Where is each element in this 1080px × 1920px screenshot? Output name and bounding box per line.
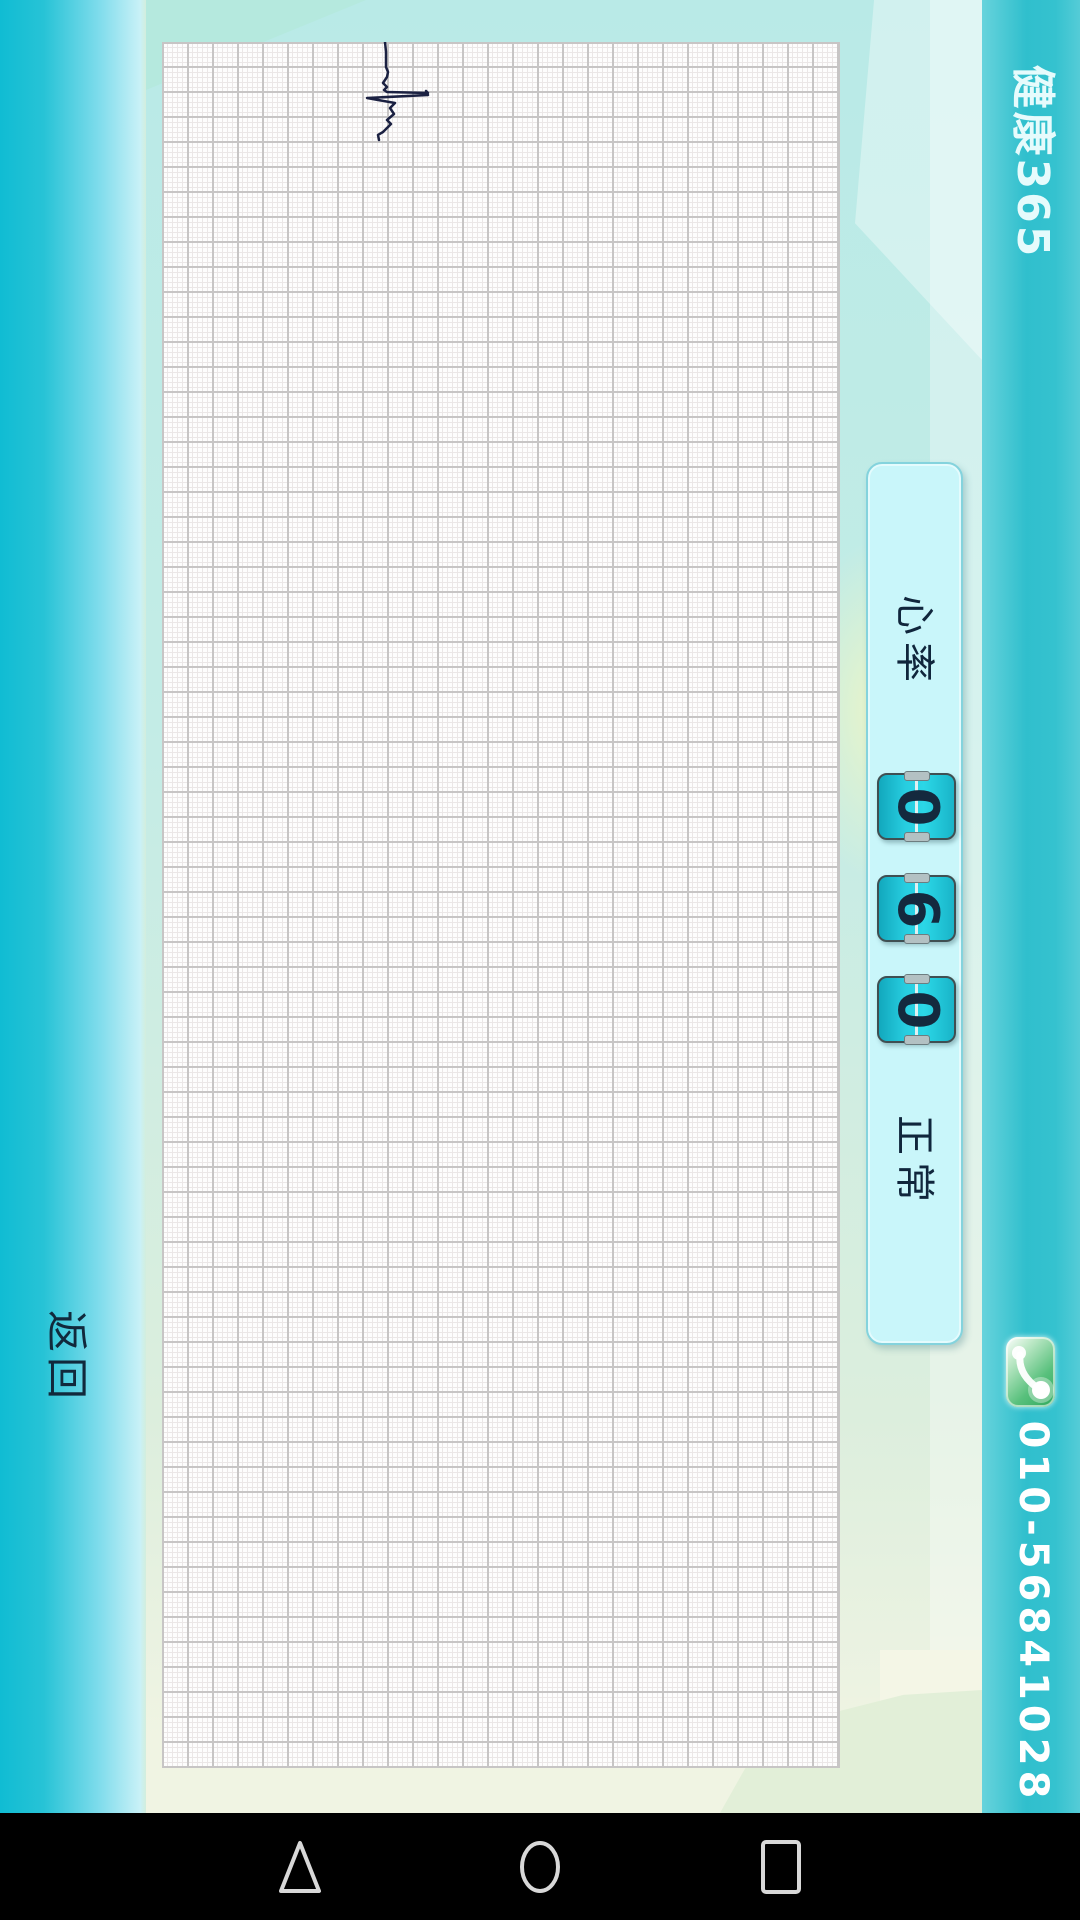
android-navbar xyxy=(0,1813,1080,1920)
flip-counter-hinge xyxy=(904,934,930,944)
flip-digit: 0 xyxy=(889,787,945,826)
phone-handset-icon xyxy=(1006,1337,1055,1407)
heart-rate-label: 心率 xyxy=(894,595,934,689)
flip-counter-hinge xyxy=(904,771,930,781)
flip-counter-hinge xyxy=(904,974,930,984)
app-title: 健康365 xyxy=(1010,65,1054,260)
screen: 返回 健康365 010-56841028 心率 0 6 0 正常 xyxy=(0,0,1080,1920)
nav-back-button[interactable] xyxy=(264,1831,336,1903)
flip-digit-tile: 0 xyxy=(877,773,956,840)
ecg-grid-paper xyxy=(162,42,840,1768)
phone-icon[interactable] xyxy=(1006,1337,1055,1407)
nav-home-button[interactable] xyxy=(504,1831,576,1903)
heart-rate-panel: 心率 0 6 0 正常 xyxy=(866,462,963,1345)
flip-counter-hinge xyxy=(904,1035,930,1045)
flip-digit: 6 xyxy=(889,889,945,928)
left-sidebar: 返回 xyxy=(0,0,146,1813)
circle-home-icon xyxy=(518,1839,562,1895)
flip-counter-hinge xyxy=(904,832,930,842)
flip-digit-tile: 0 xyxy=(877,976,956,1043)
ecg-trace xyxy=(162,42,840,1768)
square-recents-icon xyxy=(759,1839,803,1895)
phone-number: 010-56841028 xyxy=(1013,1421,1053,1804)
triangle-back-icon xyxy=(276,1839,324,1895)
back-button[interactable]: 返回 xyxy=(45,1310,87,1404)
flip-digit-tile: 6 xyxy=(877,875,956,942)
heart-rate-status: 正常 xyxy=(894,1115,934,1209)
flip-digit: 0 xyxy=(889,990,945,1029)
nav-recents-button[interactable] xyxy=(745,1831,817,1903)
flip-counter-hinge xyxy=(904,873,930,883)
